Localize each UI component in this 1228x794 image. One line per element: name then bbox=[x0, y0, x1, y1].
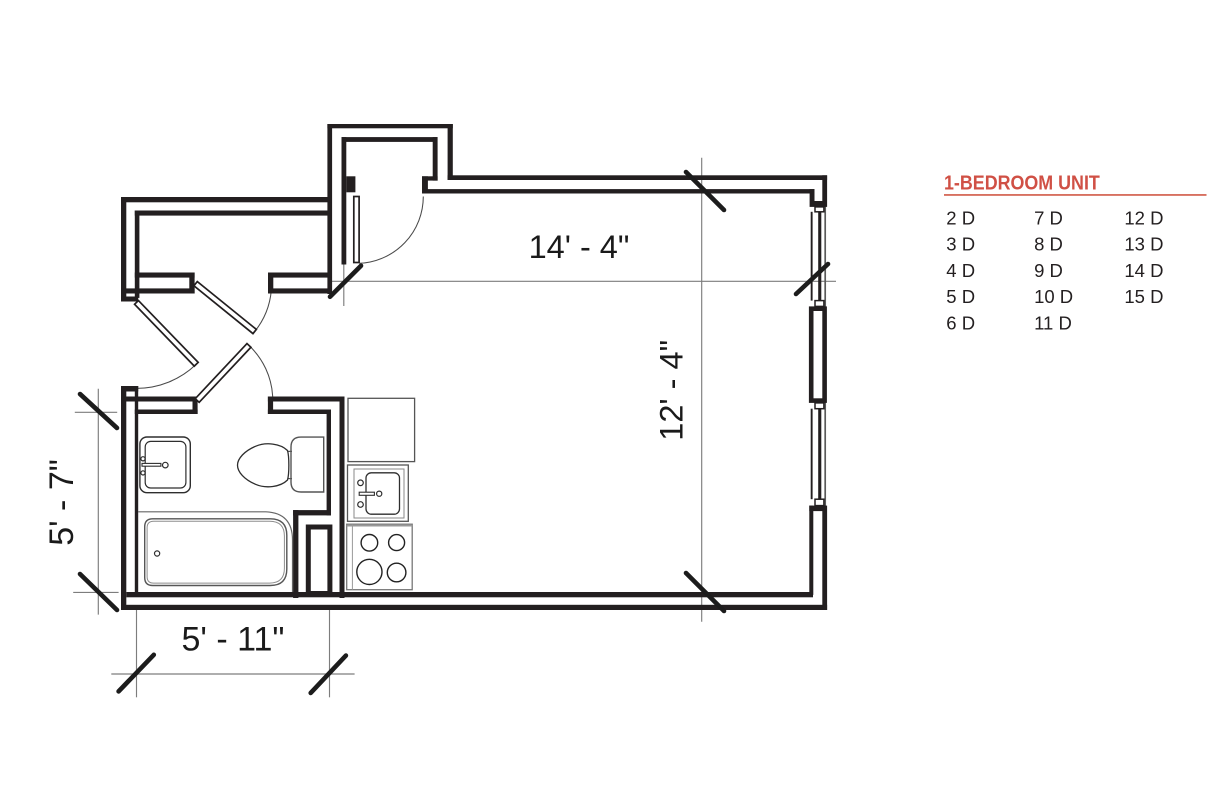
svg-text:8 D: 8 D bbox=[1034, 234, 1063, 255]
svg-text:5 D: 5 D bbox=[946, 286, 975, 307]
svg-text:12' - 4": 12' - 4" bbox=[654, 340, 690, 441]
svg-text:5' - 7": 5' - 7" bbox=[43, 459, 81, 546]
svg-text:10 D: 10 D bbox=[1034, 286, 1073, 307]
svg-text:15 D: 15 D bbox=[1124, 286, 1163, 307]
svg-text:2 D: 2 D bbox=[946, 207, 975, 228]
svg-text:14 D: 14 D bbox=[1124, 260, 1163, 281]
svg-text:1-BEDROOM UNIT: 1-BEDROOM UNIT bbox=[944, 172, 1100, 194]
svg-text:7 D: 7 D bbox=[1034, 207, 1063, 228]
svg-text:9 D: 9 D bbox=[1034, 260, 1063, 281]
svg-text:14' - 4": 14' - 4" bbox=[529, 229, 630, 265]
svg-text:12 D: 12 D bbox=[1124, 207, 1163, 228]
svg-text:11 D: 11 D bbox=[1034, 313, 1072, 334]
svg-text:5' - 11": 5' - 11" bbox=[182, 620, 285, 658]
svg-text:4 D: 4 D bbox=[946, 260, 975, 281]
svg-text:6 D: 6 D bbox=[946, 313, 975, 334]
svg-text:3 D: 3 D bbox=[946, 234, 975, 255]
svg-text:13 D: 13 D bbox=[1124, 234, 1163, 255]
